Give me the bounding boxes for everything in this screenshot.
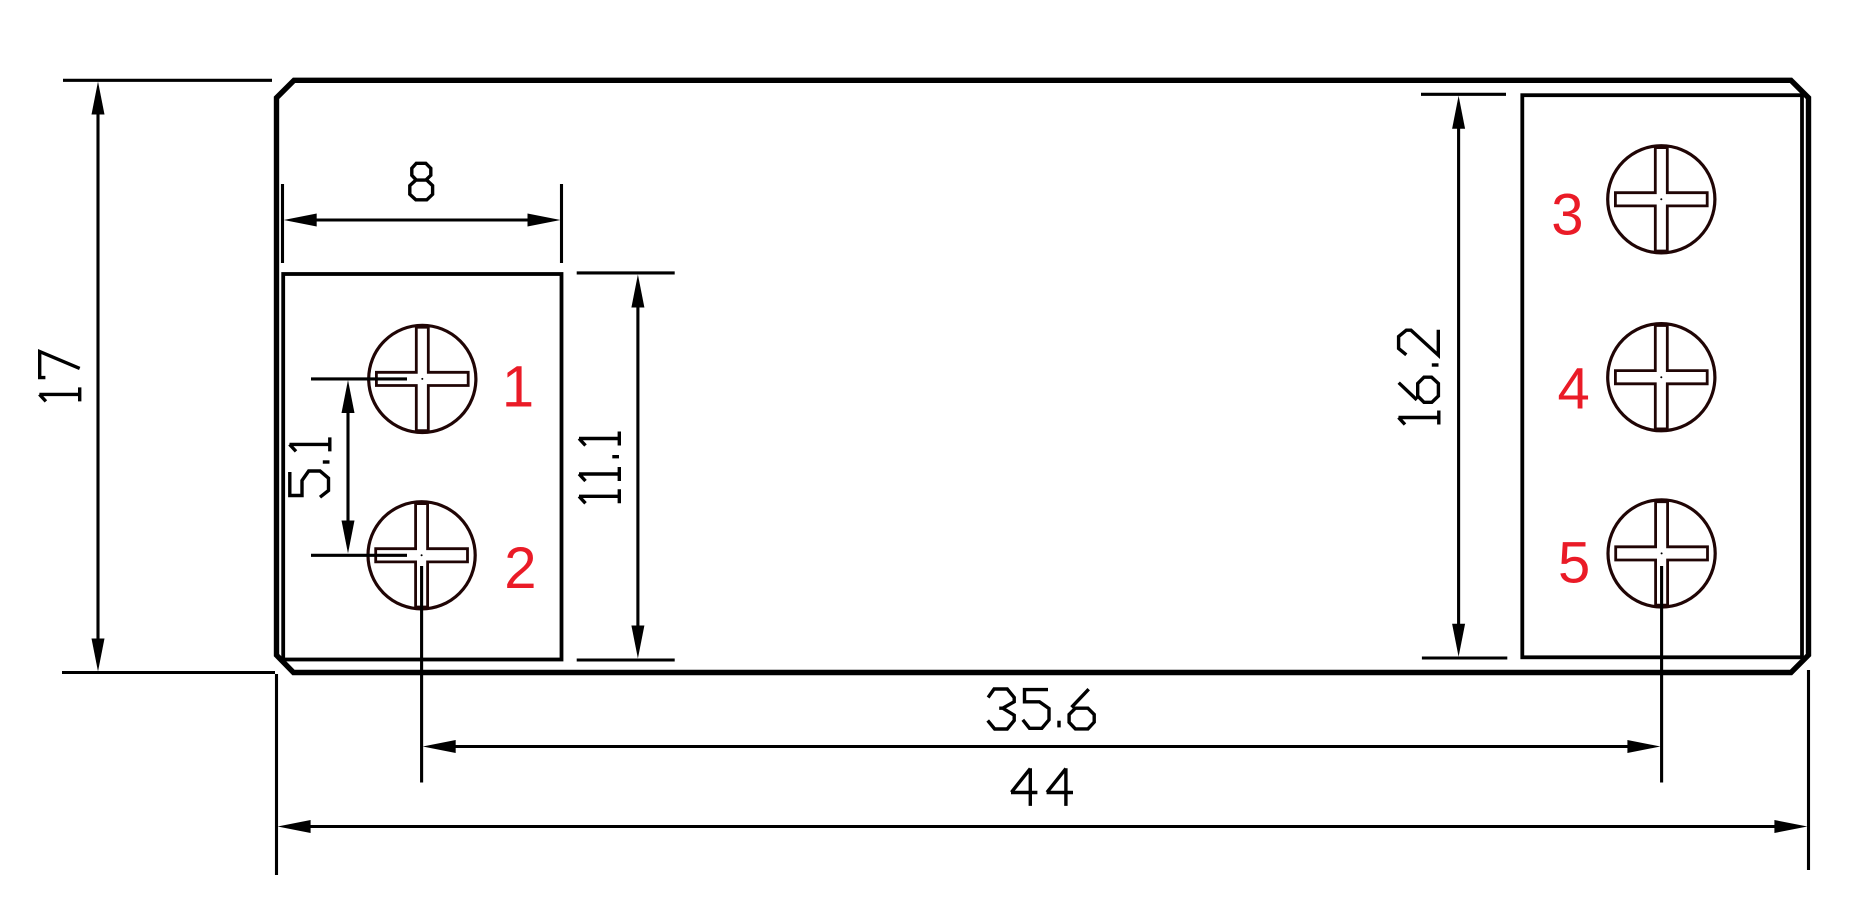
svg-text:1: 1 [502,355,534,420]
svg-text:2: 2 [504,536,536,601]
svg-text:4: 4 [1557,357,1589,422]
svg-text:5: 5 [1558,530,1590,595]
svg-text:3: 3 [1551,183,1583,248]
